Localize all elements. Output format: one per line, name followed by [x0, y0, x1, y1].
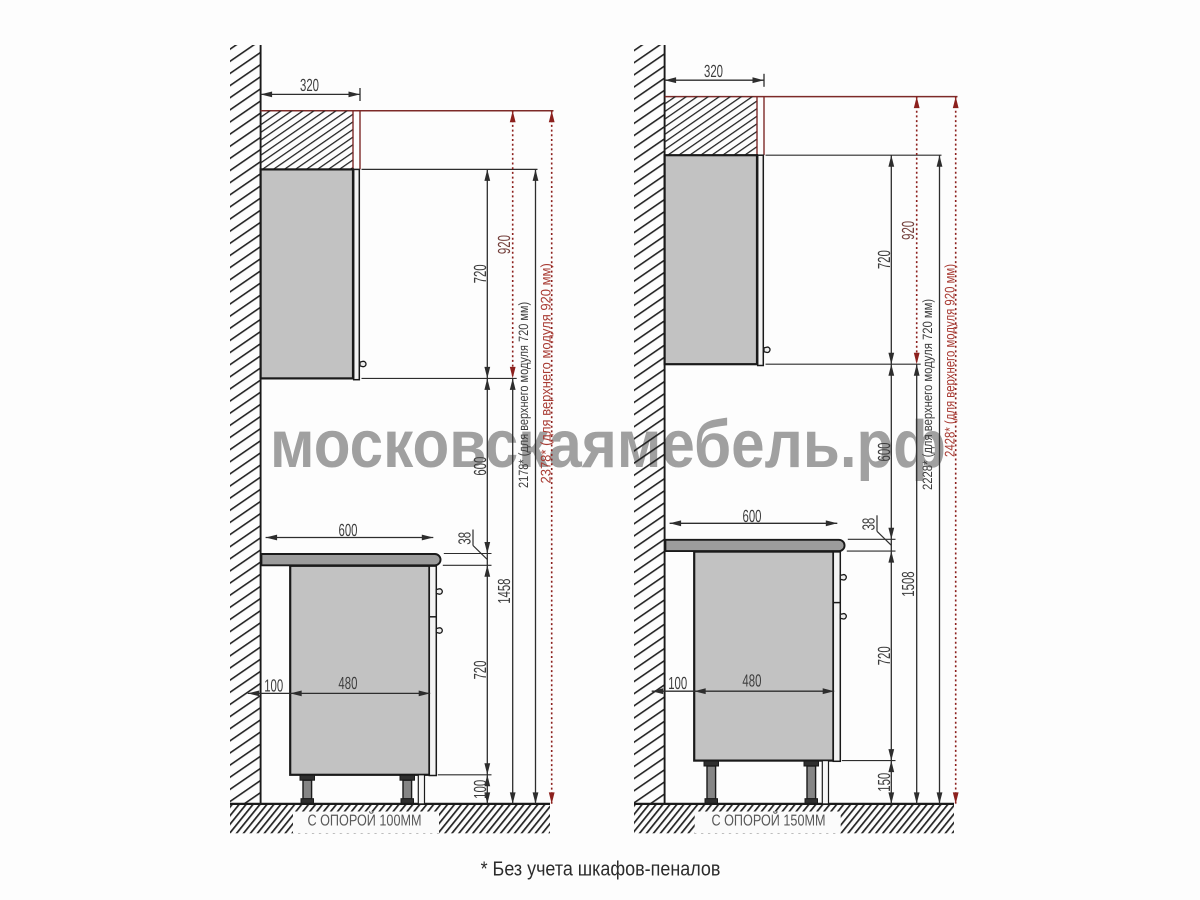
svg-text:С ОПОРОЙ 100ММ: С ОПОРОЙ 100ММ: [307, 811, 421, 830]
svg-text:С ОПОРОЙ 150ММ: С ОПОРОЙ 150ММ: [711, 811, 825, 830]
svg-text:600: 600: [743, 506, 762, 526]
svg-text:480: 480: [742, 671, 761, 691]
svg-text:38: 38: [454, 532, 474, 545]
svg-text:150: 150: [874, 773, 894, 792]
svg-text:320: 320: [300, 75, 319, 95]
svg-text:100: 100: [470, 780, 490, 799]
svg-text:2428* (для верхнего модуля 920: 2428* (для верхнего модуля 920 мм): [942, 264, 958, 457]
svg-text:720: 720: [874, 250, 894, 269]
svg-text:480: 480: [338, 673, 357, 693]
svg-text:600: 600: [470, 457, 490, 476]
svg-text:2228* (для верхнего модуля 720: 2228* (для верхнего модуля 720 мм): [920, 299, 935, 490]
svg-text:720: 720: [470, 660, 490, 679]
svg-text:600: 600: [339, 520, 358, 540]
svg-text:100: 100: [668, 673, 687, 693]
svg-text:2378* (для верхнего модуля 920: 2378* (для верхнего модуля 920 мм): [538, 263, 554, 483]
svg-text:320: 320: [704, 61, 723, 81]
svg-text:1508: 1508: [898, 571, 918, 596]
svg-text:38: 38: [858, 518, 878, 531]
svg-text:100: 100: [264, 675, 283, 695]
svg-text:2178* (для верхнего модуля 720: 2178* (для верхнего модуля 720 мм): [516, 302, 531, 488]
svg-text:920: 920: [494, 235, 514, 254]
svg-text:1458: 1458: [494, 578, 514, 603]
svg-text:600: 600: [874, 442, 894, 461]
svg-text:720: 720: [874, 646, 894, 665]
svg-text:720: 720: [470, 264, 490, 283]
svg-text:920: 920: [898, 221, 918, 240]
